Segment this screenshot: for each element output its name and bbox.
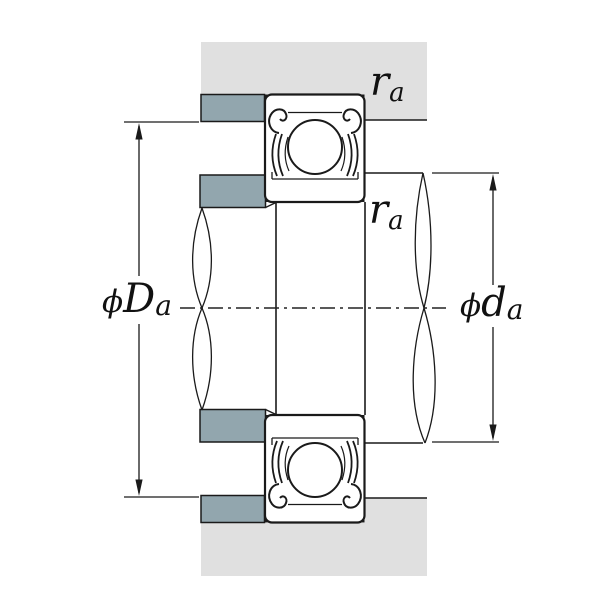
bearing-mounting-diagram: ϕDa ϕda ra ra bbox=[0, 0, 600, 600]
bearing-ball bbox=[288, 120, 342, 174]
shaft-abutment-block-bottom bbox=[200, 410, 266, 443]
bearing-section-bottom bbox=[265, 415, 365, 523]
housing-shoulder-block-top bbox=[201, 95, 265, 122]
housing-shoulder-block-bottom bbox=[201, 496, 265, 523]
diagram-canvas: ϕDa ϕda ra ra bbox=[0, 0, 600, 600]
bearing-section-top bbox=[265, 95, 365, 203]
shaft-abutment-block-top bbox=[200, 175, 266, 208]
